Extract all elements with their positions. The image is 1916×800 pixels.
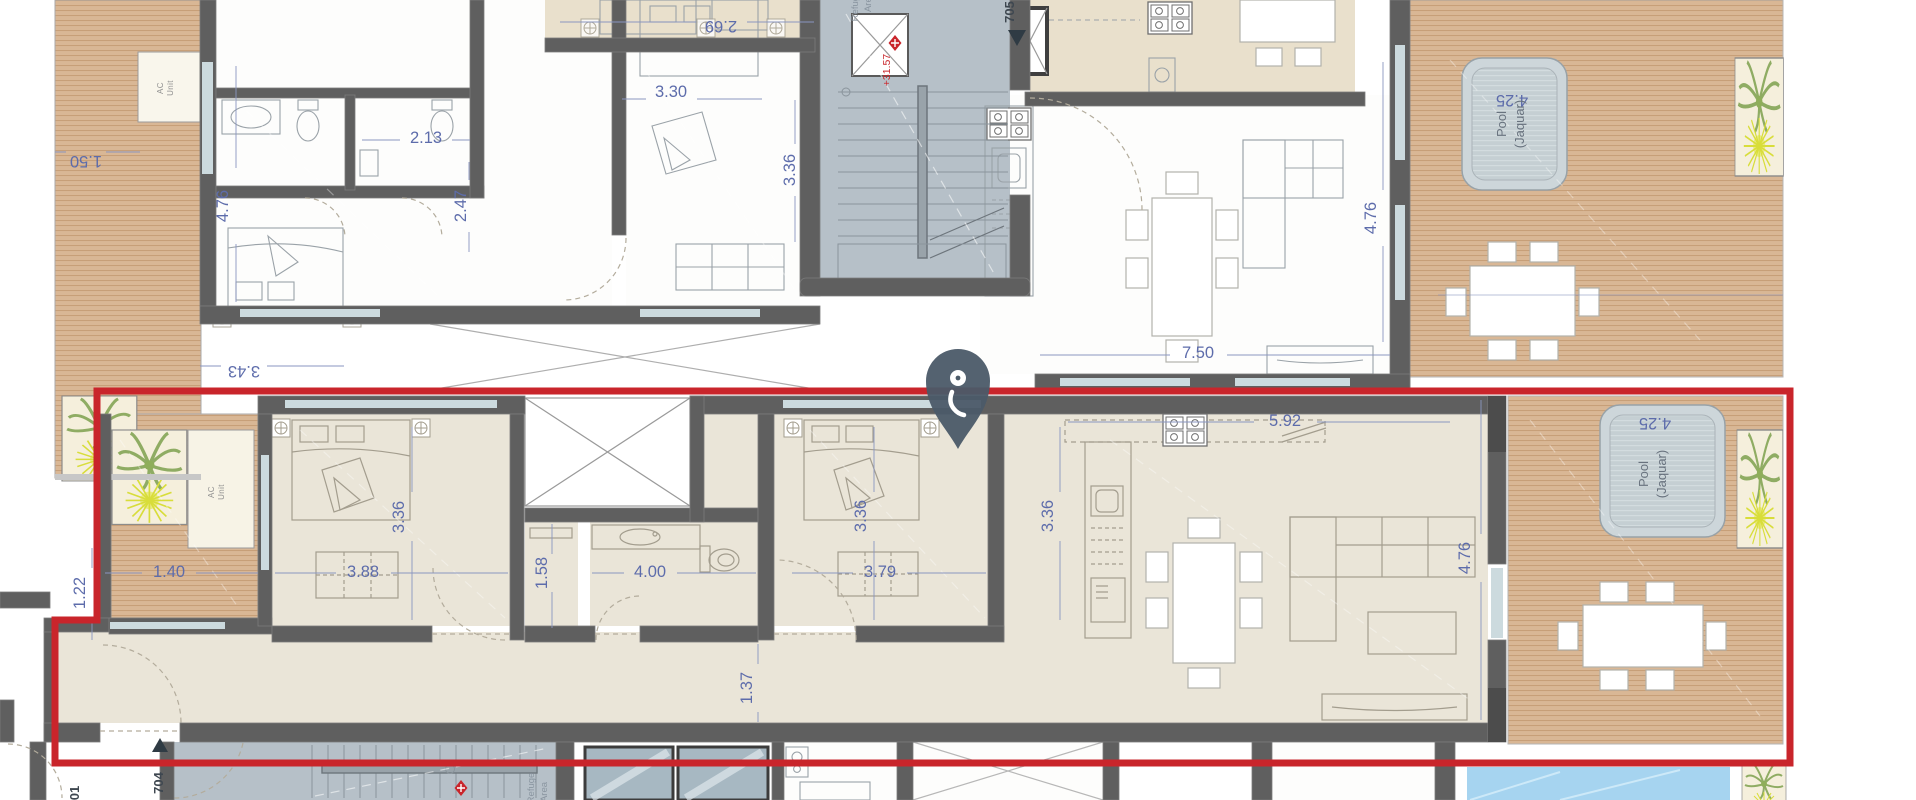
plan-label: 3.43 (228, 362, 260, 380)
plan-label: 1.50 (70, 152, 102, 170)
plan-label: Refuge (850, 0, 861, 21)
plan-label: Area (863, 0, 874, 12)
plan-label: 01 (67, 786, 82, 800)
plan-label: 1.22 (71, 577, 89, 609)
plan-label: 4.76 (214, 190, 232, 222)
plan-label: 4.00 (634, 563, 666, 581)
plan-label: 704 (151, 771, 166, 793)
window-panels (585, 747, 768, 800)
plan-label: 2.47 (452, 190, 470, 222)
plan-label: Unit (217, 484, 226, 500)
plan-label: 2.13 (410, 129, 442, 147)
plan-label: 3.79 (864, 563, 896, 581)
plan-label: 3.36 (781, 154, 799, 186)
plan-label: Unit (166, 80, 175, 96)
plant-bottom (1742, 762, 1786, 800)
lightwell-void (525, 398, 690, 506)
floor-plan: 2.693.303.362.132.474.761.503.437.504.76… (0, 0, 1916, 800)
plan-label: 3.88 (347, 563, 379, 581)
plan-label: (Jaquar) (1512, 100, 1527, 148)
plan-label: Refuge (526, 773, 537, 800)
upper-void (430, 324, 820, 390)
plan-label: 3.30 (655, 83, 687, 101)
corridor (58, 632, 1004, 723)
plant-top-terrace (1735, 58, 1783, 176)
plan-label: 1.40 (153, 563, 185, 581)
top-terrace-deck (1410, 0, 1783, 377)
plan-label: 3.36 (390, 501, 408, 533)
bathroom (590, 522, 758, 626)
plan-label: +31.57 (881, 54, 893, 87)
plan-label: 1.58 (533, 557, 551, 589)
plan-label: (Jaquar) (1654, 450, 1669, 498)
plant-unit-terrace (1737, 430, 1783, 548)
lower-unit-pool (1467, 767, 1730, 800)
plan-label: 7.50 (1182, 344, 1214, 362)
plan-label: 1.37 (738, 672, 756, 704)
plan-label: AC (156, 82, 165, 94)
plan-label: Pool (1636, 461, 1651, 487)
plan-label: 3.36 (1039, 500, 1057, 532)
plan-label: 2.69 (705, 17, 737, 35)
plan-label: 705 (1002, 1, 1017, 23)
plan-label: 4.76 (1456, 542, 1474, 574)
plan-label: 4.25 (1639, 414, 1671, 432)
highlighted-unit-rooms (58, 396, 1783, 744)
plan-label: Pool (1494, 111, 1509, 137)
plan-label: 5.92 (1269, 412, 1301, 430)
plan-label: Area (539, 781, 550, 800)
plan-label: AC (207, 486, 216, 498)
plan-label: 3.36 (852, 500, 870, 532)
plan-label: 4.76 (1362, 202, 1380, 234)
